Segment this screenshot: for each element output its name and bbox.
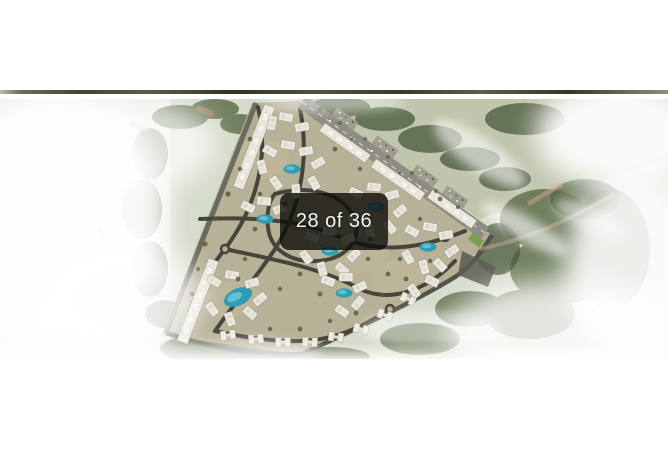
image-counter-badge: 28 of 36 [280, 193, 388, 250]
listing-photo[interactable]: 28 of 36 [0, 99, 668, 359]
image-counter-text: 28 of 36 [296, 210, 372, 233]
gallery-page: 28 of 36 [0, 0, 668, 452]
previous-image-sliver [0, 90, 668, 94]
